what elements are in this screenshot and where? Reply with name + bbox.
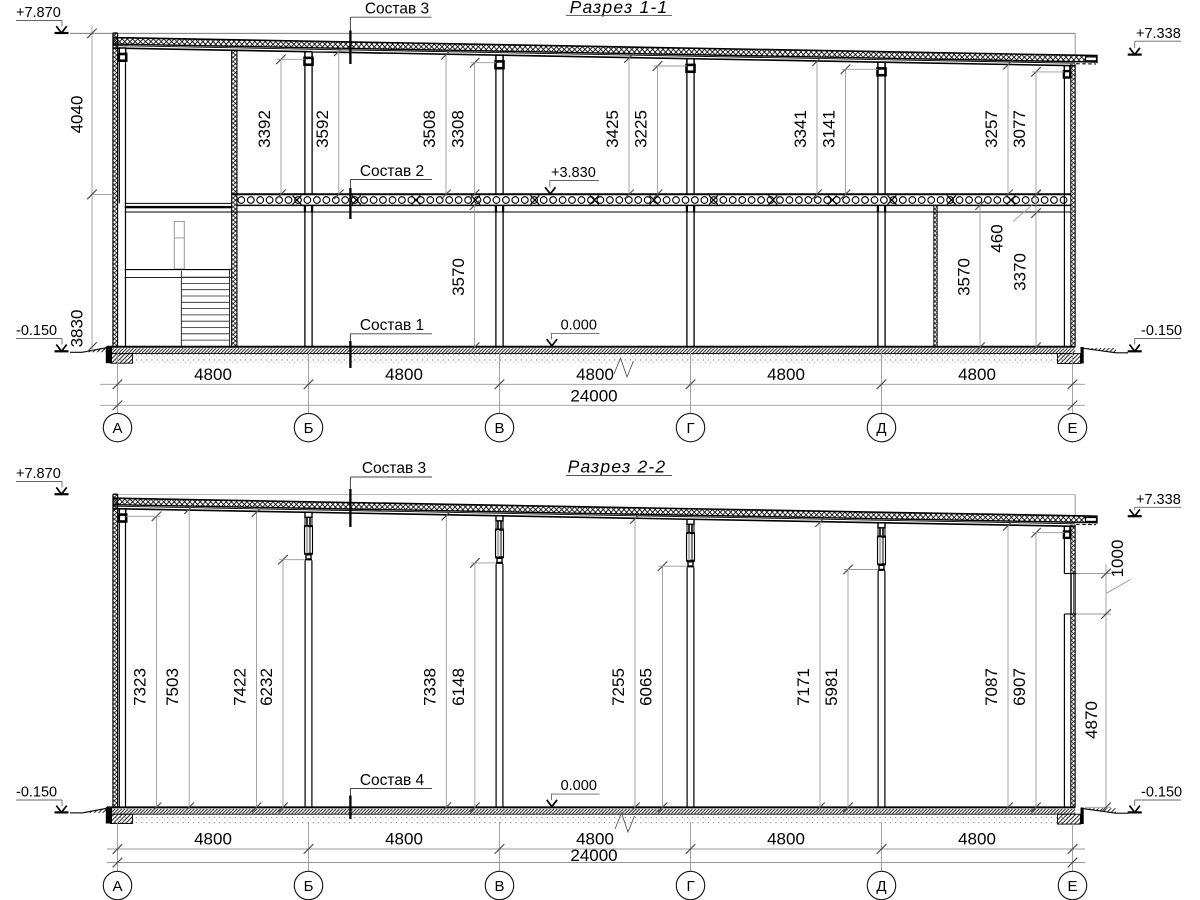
svg-text:3370: 3370 xyxy=(1011,253,1030,291)
svg-text:Д: Д xyxy=(876,420,886,437)
svg-text:1000: 1000 xyxy=(1108,540,1127,578)
svg-text:+7.338: +7.338 xyxy=(1136,26,1181,42)
svg-text:4040: 4040 xyxy=(68,96,87,134)
svg-text:7323: 7323 xyxy=(131,668,150,706)
svg-text:4800: 4800 xyxy=(767,830,805,849)
svg-text:6907: 6907 xyxy=(1010,668,1029,706)
svg-text:3225: 3225 xyxy=(632,110,651,148)
svg-text:0.000: 0.000 xyxy=(561,318,597,334)
svg-text:4800: 4800 xyxy=(194,830,232,849)
svg-text:7171: 7171 xyxy=(794,668,813,706)
svg-text:Состав 4: Состав 4 xyxy=(360,772,425,789)
svg-text:В: В xyxy=(494,878,504,895)
svg-text:Д: Д xyxy=(876,878,886,895)
svg-text:4800: 4800 xyxy=(576,365,614,384)
svg-text:3425: 3425 xyxy=(603,110,622,148)
svg-text:В: В xyxy=(494,420,504,437)
svg-text:-0.150: -0.150 xyxy=(1141,785,1182,801)
svg-text:+7.338: +7.338 xyxy=(1136,492,1181,508)
svg-text:А: А xyxy=(112,420,122,437)
svg-text:Е: Е xyxy=(1067,878,1077,895)
svg-text:Б: Б xyxy=(304,420,314,437)
svg-text:3508: 3508 xyxy=(420,110,439,148)
svg-text:6065: 6065 xyxy=(637,668,656,706)
svg-text:7422: 7422 xyxy=(231,668,250,706)
svg-text:Разрез 2-2: Разрез 2-2 xyxy=(568,457,667,477)
svg-text:3392: 3392 xyxy=(255,110,274,148)
svg-text:7338: 7338 xyxy=(420,668,439,706)
svg-text:3570: 3570 xyxy=(955,258,974,296)
svg-text:4870: 4870 xyxy=(1082,701,1101,739)
svg-text:3257: 3257 xyxy=(982,110,1001,148)
svg-text:7255: 7255 xyxy=(609,668,628,706)
svg-text:7087: 7087 xyxy=(982,668,1001,706)
svg-text:Состав 2: Состав 2 xyxy=(360,163,424,180)
svg-text:Г: Г xyxy=(686,420,694,437)
svg-text:Е: Е xyxy=(1067,420,1077,437)
svg-text:+7.870: +7.870 xyxy=(16,5,61,21)
svg-text:4800: 4800 xyxy=(194,365,232,384)
svg-text:+3.830: +3.830 xyxy=(551,165,596,181)
svg-text:Г: Г xyxy=(686,878,694,895)
svg-text:24000: 24000 xyxy=(570,846,617,865)
svg-text:Состав 1: Состав 1 xyxy=(360,317,424,334)
svg-text:А: А xyxy=(112,878,122,895)
svg-text:3141: 3141 xyxy=(820,110,839,148)
svg-text:4800: 4800 xyxy=(385,365,423,384)
svg-text:3308: 3308 xyxy=(449,110,468,148)
svg-text:4800: 4800 xyxy=(958,365,996,384)
svg-text:0.000: 0.000 xyxy=(561,778,597,794)
svg-text:6232: 6232 xyxy=(257,668,276,706)
svg-text:4800: 4800 xyxy=(385,830,423,849)
svg-text:3570: 3570 xyxy=(449,258,468,296)
svg-text:7503: 7503 xyxy=(163,668,182,706)
svg-text:+7.870: +7.870 xyxy=(16,466,61,482)
svg-text:Разрез 1-1: Разрез 1-1 xyxy=(570,0,669,17)
svg-text:460: 460 xyxy=(988,224,1007,252)
svg-text:Состав 3: Состав 3 xyxy=(365,1,429,18)
svg-text:4800: 4800 xyxy=(767,365,805,384)
svg-text:3830: 3830 xyxy=(68,310,87,348)
svg-text:-0.150: -0.150 xyxy=(16,323,57,339)
svg-text:3341: 3341 xyxy=(791,110,810,148)
svg-text:Состав 3: Состав 3 xyxy=(362,460,426,477)
svg-text:-0.150: -0.150 xyxy=(1141,323,1182,339)
svg-text:Б: Б xyxy=(304,878,314,895)
svg-text:3592: 3592 xyxy=(313,110,332,148)
svg-text:5981: 5981 xyxy=(822,668,841,706)
svg-text:4800: 4800 xyxy=(958,830,996,849)
svg-text:3077: 3077 xyxy=(1010,110,1029,148)
svg-text:24000: 24000 xyxy=(570,387,617,406)
svg-text:-0.150: -0.150 xyxy=(16,785,57,801)
svg-text:6148: 6148 xyxy=(449,668,468,706)
